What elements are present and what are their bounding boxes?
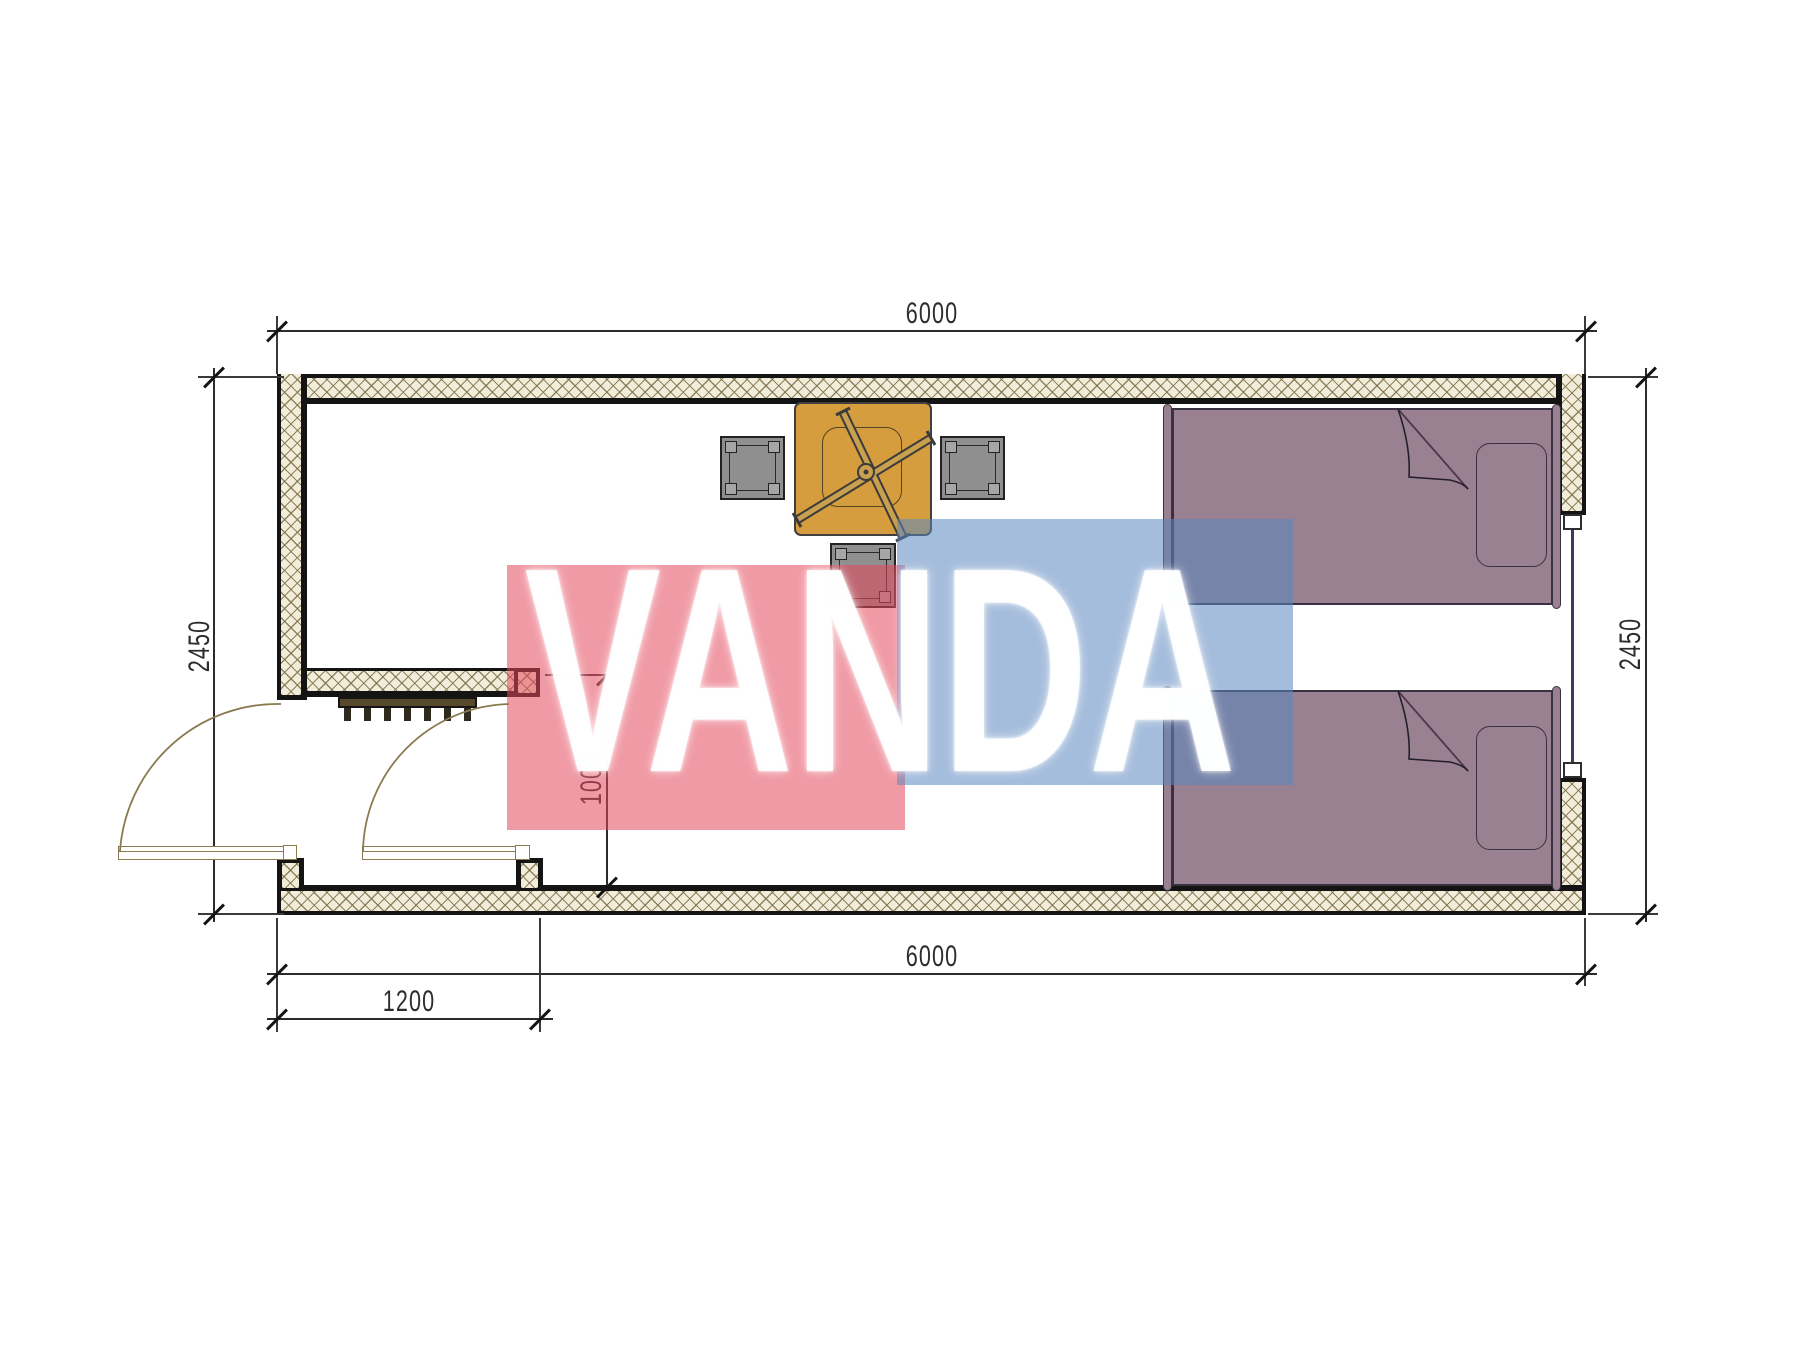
- dim-label-width-top: 6000: [896, 297, 969, 331]
- dim-label-entry-width: 1200: [373, 985, 446, 1019]
- watermark-text: VANDA: [524, 520, 1236, 820]
- door-leaf-right: [362, 846, 522, 860]
- bed-top-pillow: [1476, 443, 1547, 567]
- stool-left: [720, 436, 785, 500]
- watermark-logo: VANDA: [280, 520, 1480, 820]
- extension-line: [1584, 316, 1586, 374]
- door-frame-cap-left: [283, 845, 297, 860]
- dim-label-height-left: 2450: [183, 610, 217, 683]
- dim-label-width-bottom: 6000: [896, 940, 969, 974]
- floor-plan-page: { "drawing": { "kind": "container-house-…: [0, 0, 1800, 1350]
- stool-right: [940, 436, 1005, 500]
- door-jamb-left: [277, 858, 304, 888]
- window-frame-top: [1563, 514, 1582, 530]
- bed-top-footboard: [1552, 404, 1561, 609]
- dining-table-top-outline: [822, 427, 902, 507]
- window-frame-bottom: [1563, 762, 1582, 778]
- bed-bottom-footboard: [1552, 686, 1561, 891]
- door-jamb-right: [516, 858, 543, 888]
- bed-bottom-pillow: [1476, 726, 1547, 850]
- extension-line: [276, 316, 278, 374]
- wall-top: [277, 374, 1586, 404]
- door-swing-arc-left: [120, 704, 281, 851]
- dim-label-height-right: 2450: [1614, 608, 1648, 681]
- door-leaf-left: [118, 846, 288, 860]
- wall-bottom: [277, 885, 1586, 915]
- window-glass-line: [1571, 530, 1574, 763]
- door-frame-cap-right: [515, 845, 530, 860]
